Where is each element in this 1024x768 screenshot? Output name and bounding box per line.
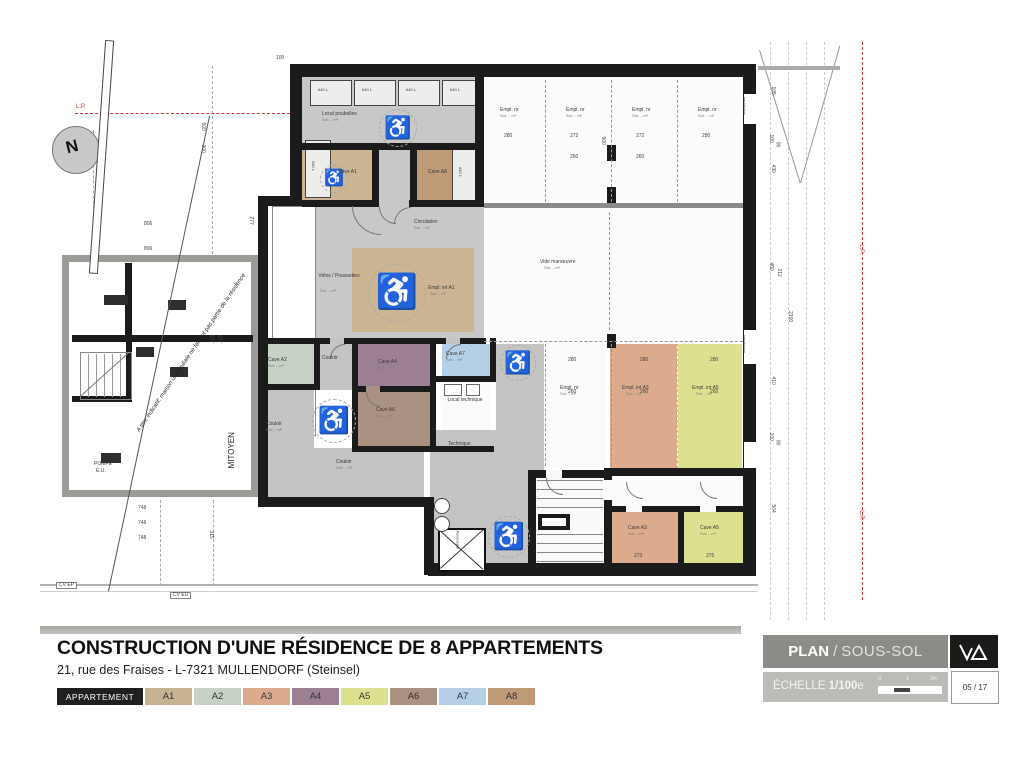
stair-tread xyxy=(537,534,603,535)
machine xyxy=(434,498,450,514)
wall xyxy=(743,64,756,576)
wall xyxy=(475,77,484,207)
t: Sol: .. m² xyxy=(414,226,430,230)
corridor-bottom xyxy=(264,448,424,497)
label-chip xyxy=(168,300,186,310)
label-chip xyxy=(136,347,154,357)
legend-header: APPARTEMENT xyxy=(57,688,143,705)
plan-separator: / xyxy=(833,643,837,660)
plan-label: PLAN xyxy=(788,643,829,660)
terrain-line xyxy=(788,42,789,620)
plan-sheet: 640 L640 L640 L640 L640 L640 LN♿♿♿♿♿♿Loc… xyxy=(0,0,1024,768)
dim: 500 xyxy=(200,122,205,130)
dim: 105 xyxy=(770,86,775,94)
waste-bin xyxy=(354,80,396,106)
scale-bar xyxy=(878,686,942,694)
fixture-sink xyxy=(444,384,462,396)
wall xyxy=(372,148,379,205)
stair-tread xyxy=(537,489,603,490)
wheelchair-icon: ♿ xyxy=(379,109,417,147)
scale-label: ÉCHELLE xyxy=(773,680,825,692)
wall xyxy=(258,384,318,390)
waste-bin xyxy=(310,80,352,106)
street-line xyxy=(40,584,758,586)
t: Sol: .. m² xyxy=(322,118,338,122)
plan-type-box: PLAN / SOUS-SOL xyxy=(763,635,948,668)
room-label: Vélos / Poussettes xyxy=(318,274,360,279)
architect-logo xyxy=(950,635,998,668)
legend-cells: A1A2A3A4A5A6A7A8 xyxy=(145,688,537,705)
t: Sol: .. m² xyxy=(698,114,714,118)
t: Sol: .. m² xyxy=(268,364,284,368)
dim: 430 xyxy=(770,164,775,172)
property-label: L.P. xyxy=(858,510,864,520)
dim: 177 xyxy=(208,334,213,342)
legend-item-a3: A3 xyxy=(243,688,292,705)
scale-tick-0: 0 xyxy=(878,676,881,682)
wall xyxy=(528,470,536,570)
t: 640 L xyxy=(450,88,460,92)
property-label: L.P. xyxy=(76,104,86,110)
dim: 806 xyxy=(144,222,152,227)
stair-tread xyxy=(88,354,89,397)
wall xyxy=(290,64,756,77)
wall xyxy=(258,497,434,507)
wall xyxy=(424,497,434,575)
stall-front xyxy=(484,341,743,342)
dim: 280 xyxy=(568,358,576,363)
dim: 748 xyxy=(138,506,146,511)
ventilation-label: ventilation xyxy=(742,97,746,115)
project-title: CONSTRUCTION D'UNE RÉSIDENCE DE 8 APPART… xyxy=(57,637,603,660)
t: Sol: .. m² xyxy=(632,114,648,118)
stair-tread xyxy=(537,552,603,553)
stall-divider xyxy=(545,344,546,466)
door-gap xyxy=(446,338,460,344)
dim: 260 xyxy=(570,155,578,160)
scale-suffix: e xyxy=(857,680,863,692)
legend-item-a7: A7 xyxy=(439,688,488,705)
wall xyxy=(410,148,417,205)
t: Sol: .. m² xyxy=(500,114,516,118)
wheelchair-icon: ♿ xyxy=(312,399,356,443)
stair-tread xyxy=(112,354,113,397)
t: 640 L xyxy=(362,88,372,92)
project-address: 21, rue des Fraises - L-7321 MULLENDORF … xyxy=(57,663,360,677)
manhole-label: CV EU xyxy=(170,592,191,599)
wall xyxy=(290,64,302,206)
plan-value: SOUS-SOL xyxy=(841,643,923,660)
wall xyxy=(606,468,746,476)
legend-item-a4: A4 xyxy=(292,688,341,705)
dim: 315 xyxy=(208,530,213,538)
room-label: E.U. xyxy=(96,469,106,474)
machine xyxy=(434,516,450,532)
door-gap xyxy=(604,480,612,500)
manhole-label: CV EP xyxy=(56,582,77,589)
dim: 100 xyxy=(768,432,773,440)
waste-bin xyxy=(398,80,440,106)
dim: 450 xyxy=(768,262,773,270)
dim: 2100 xyxy=(787,311,792,322)
room-label: Local technique xyxy=(442,398,488,403)
wheelchair-icon: ♿ xyxy=(488,516,530,558)
street-line xyxy=(40,591,758,592)
door-gap xyxy=(700,506,716,512)
property-label: L.P. xyxy=(858,244,864,254)
boundary-dash xyxy=(212,66,213,254)
wall xyxy=(352,386,436,392)
t: Sol: .. m² xyxy=(320,289,336,293)
wall xyxy=(678,506,684,563)
dim: 500 xyxy=(600,136,605,144)
door-gap xyxy=(330,338,344,344)
logo-icon xyxy=(957,641,991,663)
scale-value: 1/100 xyxy=(829,680,858,692)
dim: 504 xyxy=(770,504,775,512)
dim: 100 xyxy=(768,134,773,142)
dim: 100 xyxy=(276,56,284,61)
t: 640 L xyxy=(406,88,416,92)
room-label: POMPE xyxy=(94,462,112,467)
door-gap xyxy=(379,200,409,207)
wall xyxy=(352,338,358,452)
stall-divider xyxy=(611,344,612,466)
corridor-caves xyxy=(374,150,414,205)
fixture-wc xyxy=(466,384,480,396)
room-label: Ascenseur xyxy=(455,531,459,550)
dim: 275 xyxy=(706,554,714,559)
stair-tread xyxy=(537,498,603,499)
door-gap xyxy=(546,470,562,478)
dim: 177 xyxy=(216,334,221,342)
garage-door-strip xyxy=(484,203,743,208)
scale-bar-segment xyxy=(894,688,910,692)
stair-landing xyxy=(542,518,566,526)
dim: 748 xyxy=(138,521,146,526)
stair-tread xyxy=(96,354,97,397)
titleblock-divider xyxy=(40,626,741,634)
legend-item-a6: A6 xyxy=(390,688,439,705)
stair-tread xyxy=(537,561,603,562)
legend-item-a2: A2 xyxy=(194,688,243,705)
stall-divider xyxy=(677,80,678,202)
mitoyen-label: MITOYEN xyxy=(228,432,236,468)
terrain-line xyxy=(770,42,771,620)
terrain-line xyxy=(806,42,807,620)
dim: 272 xyxy=(636,134,644,139)
stair-tread xyxy=(537,543,603,544)
dim: 280 xyxy=(504,134,512,139)
dim: 410 xyxy=(770,376,775,384)
dim: 273 xyxy=(634,554,642,559)
stair-tread xyxy=(537,507,603,508)
room-label: Cave A8 xyxy=(428,170,447,175)
legend-item-a8: A8 xyxy=(488,688,537,705)
stall-divider xyxy=(545,80,546,202)
boundary-dash xyxy=(213,500,214,586)
door-gap xyxy=(626,506,642,512)
t: Sol: .. m² xyxy=(376,414,392,418)
stall-divider xyxy=(609,212,610,330)
dim: 260 xyxy=(568,390,576,395)
t: Sol: .. m² xyxy=(266,428,282,432)
dim: 272 xyxy=(570,134,578,139)
ventilation-label: ventilation xyxy=(742,335,746,353)
room-label: Technique xyxy=(448,442,471,447)
wall xyxy=(314,338,320,390)
scale-tick-1: 1 xyxy=(906,676,909,682)
dim: 90 xyxy=(774,440,779,446)
wheelchair-icon: ♿ xyxy=(500,345,536,381)
wheelchair-icon: ♿ xyxy=(368,264,426,322)
t: Sol: .. m² xyxy=(544,266,560,270)
dim: 260 xyxy=(710,390,718,395)
dim: 280 xyxy=(710,358,718,363)
dim: 90 xyxy=(774,142,779,148)
t: Sol: .. m² xyxy=(566,114,582,118)
stall-divider xyxy=(677,346,678,466)
label-chip xyxy=(104,295,128,305)
stall-divider xyxy=(611,80,612,202)
t: Sol: .. m² xyxy=(378,366,394,370)
dim: 748 xyxy=(138,536,146,541)
wall xyxy=(258,196,268,507)
t: 640 L xyxy=(458,167,462,177)
dim: 300 xyxy=(200,144,205,152)
t: 640 L xyxy=(311,161,315,171)
dim: 280 xyxy=(640,358,648,363)
wall xyxy=(430,338,436,452)
legend-item-a1: A1 xyxy=(145,688,194,705)
dim: 277 xyxy=(248,216,253,224)
retaining-edge xyxy=(758,66,840,70)
wall xyxy=(528,470,610,478)
boundary-dash xyxy=(160,500,161,586)
t: Sol: .. m² xyxy=(336,466,352,470)
apartment-legend: APPARTEMENT A1A2A3A4A5A6A7A8 xyxy=(57,688,537,705)
room-label: Cave A1 xyxy=(338,170,357,175)
t: Sol: .. m² xyxy=(628,532,644,536)
terrain-line xyxy=(824,42,825,620)
t: Sol: .. m² xyxy=(430,292,446,296)
dim: 260 xyxy=(636,155,644,160)
dim: 260 xyxy=(640,390,648,395)
legend-item-a5: A5 xyxy=(341,688,390,705)
scale-tick-2: 2m xyxy=(930,676,938,682)
wall xyxy=(352,446,494,452)
dim: 806 xyxy=(144,247,152,252)
ventilation-gap xyxy=(744,442,756,468)
dim: 280 xyxy=(702,134,710,139)
room-label: Couloir xyxy=(322,356,338,361)
sheet-number: 05 / 17 xyxy=(951,671,999,704)
t: Sol: .. m² xyxy=(700,532,716,536)
dim: 212 xyxy=(776,268,781,276)
t: Sol: .. m² xyxy=(446,358,462,362)
t: 640 L xyxy=(318,88,328,92)
wall xyxy=(436,376,494,382)
